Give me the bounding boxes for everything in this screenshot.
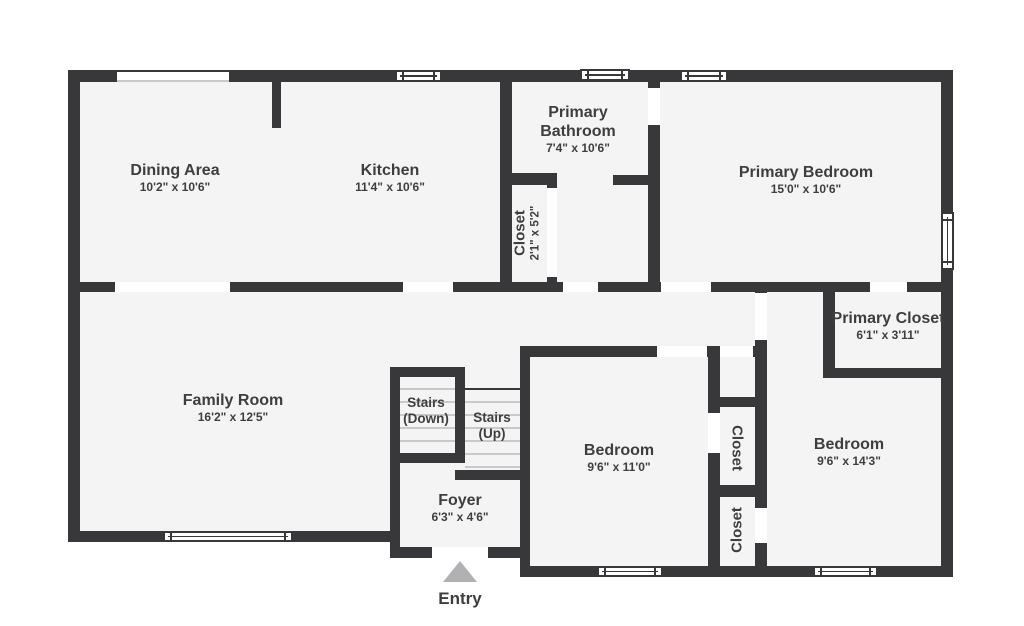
- label-family-room: Family Room 16'2" x 12'5": [183, 391, 283, 425]
- label-stairs-up: Stairs (Up): [466, 410, 518, 442]
- room-name: Dining Area: [130, 161, 219, 180]
- wall-divider-seg6: [907, 282, 953, 292]
- opening-hall-linen-closet: [720, 346, 753, 357]
- window-pane-line: [602, 571, 658, 573]
- room-name: Primary Closet: [832, 309, 945, 328]
- window-kitchen: [395, 70, 442, 82]
- label-primary-bathroom: Primary Bathroom 7'4" x 10'6": [530, 103, 626, 156]
- wall-bedrooms-bottom: [520, 566, 953, 577]
- window-dining: [117, 70, 229, 82]
- door-hall-closet-slider: [547, 188, 557, 277]
- wall-left: [68, 70, 80, 542]
- opening-hall-vestibule: [563, 282, 598, 292]
- label-dining-area: Dining Area 10'2" x 10'6": [130, 161, 219, 195]
- label-hall-closet: Closet 2'1" x 5'2": [512, 206, 543, 261]
- door-bedroom-right: [755, 293, 767, 340]
- window-pane-line: [400, 75, 437, 77]
- door-bedroom-middle: [657, 346, 707, 357]
- wall-closet-door-stub-top: [547, 173, 557, 188]
- room-name: Primary Bathroom: [530, 103, 626, 141]
- room-dims: 7'4" x 10'6": [530, 141, 626, 156]
- window-family-room: [163, 531, 293, 542]
- room-dims: 6'1" x 3'11": [832, 328, 945, 343]
- window-cap: [654, 568, 656, 575]
- window-cap: [402, 72, 404, 80]
- room-name: Bedroom: [814, 435, 884, 454]
- window-pane-line: [818, 571, 873, 573]
- label-kitchen: Kitchen 11'4" x 10'6": [355, 161, 425, 195]
- label-closet-upper: Closet: [729, 425, 746, 471]
- floor-plan: Dining Area 10'2" x 10'6" Kitchen 11'4" …: [0, 0, 1024, 626]
- room-name: Stairs (Down): [394, 395, 458, 427]
- label-foyer: Foyer 6'3" x 4'6": [431, 491, 488, 525]
- window-pane-line: [168, 536, 288, 538]
- wall-bedroom-middle-top: [520, 346, 657, 357]
- label-closet-lower: Closet: [729, 507, 746, 553]
- room-name: Family Room: [183, 391, 283, 410]
- window-cap: [587, 71, 589, 79]
- window-cap: [943, 261, 952, 263]
- window-cap: [604, 568, 606, 575]
- wall-stairs-up-bottom: [455, 470, 530, 480]
- label-entry: Entry: [438, 589, 481, 609]
- room-dims: 15'0" x 10'6": [739, 182, 873, 197]
- wall-closet-column-left: [708, 346, 720, 566]
- entry-arrow-icon: [443, 561, 477, 582]
- window-bedroom-middle: [597, 566, 663, 577]
- window-pane-line: [585, 74, 625, 76]
- room-name: Stairs (Up): [466, 410, 518, 442]
- wall-stairs-down-top: [390, 367, 465, 377]
- wall-divider-seg2: [230, 282, 403, 292]
- room-name: Bedroom: [584, 441, 654, 460]
- wall-primary-closet-bottom: [823, 368, 953, 378]
- label-stairs-down: Stairs (Down): [394, 395, 458, 427]
- label-bedroom-middle: Bedroom 9'6" x 11'0": [584, 441, 654, 475]
- label-primary-closet: Primary Closet 6'1" x 3'11": [832, 309, 945, 343]
- room-dims: 6'3" x 4'6": [431, 510, 488, 525]
- window-cap: [943, 219, 952, 221]
- room-dims: 16'2" x 12'5": [183, 410, 283, 425]
- window-cap: [170, 533, 172, 540]
- wall-linen-closet-bottom: [720, 397, 755, 407]
- room-name: Kitchen: [355, 161, 425, 180]
- window-pane-line: [685, 75, 723, 77]
- room-name: Closet: [729, 425, 746, 471]
- door-primary-closet: [870, 282, 907, 292]
- window-pane-line: [947, 217, 949, 265]
- door-primary-bedroom: [661, 282, 711, 292]
- room-dims: 10'2" x 10'6": [130, 180, 219, 195]
- window-cap: [433, 72, 435, 80]
- door-closet-upper: [708, 413, 720, 453]
- room-name: Closet: [729, 507, 746, 553]
- window-cap: [820, 568, 822, 575]
- wall-closet-door-stub-bottom: [547, 277, 557, 292]
- room-dims: 9'6" x 14'3": [814, 454, 884, 469]
- room-name: Foyer: [431, 491, 488, 510]
- door-entry: [432, 547, 488, 558]
- wall-bathroom-south-stub: [613, 175, 660, 185]
- opening-kitchen-hall: [403, 282, 453, 292]
- wall-divider-seg1: [68, 282, 115, 292]
- window-cap: [869, 568, 871, 575]
- room-dims: 9'6" x 11'0": [584, 460, 654, 475]
- window-cap: [687, 72, 689, 80]
- room-dims: 11'4" x 10'6": [355, 180, 425, 195]
- wall-foyer-right: [520, 346, 530, 577]
- window-bedroom-right: [813, 566, 878, 577]
- wall-dining-kitchen-stub: [272, 82, 281, 128]
- window-bathroom: [580, 69, 630, 81]
- wall-divider-seg5: [711, 282, 870, 292]
- room-name: Closet: [512, 206, 529, 261]
- window-cap: [621, 71, 623, 79]
- window-cap: [284, 533, 286, 540]
- window-primary-bedroom-right: [941, 212, 954, 270]
- wall-stairs-down-bottom: [390, 453, 465, 463]
- wall-between-closets: [708, 485, 767, 497]
- room-dims: 2'1" x 5'2": [529, 206, 543, 261]
- label-primary-bedroom: Primary Bedroom 15'0" x 10'6": [739, 163, 873, 197]
- window-cap: [719, 72, 721, 80]
- window-primary-bedroom-top: [680, 70, 728, 82]
- label-bedroom-right: Bedroom 9'6" x 14'3": [814, 435, 884, 469]
- door-closet-lower: [755, 508, 767, 543]
- door-bathroom-bedroom: [648, 88, 660, 125]
- opening-dining-family: [115, 282, 230, 292]
- room-name: Primary Bedroom: [739, 163, 873, 182]
